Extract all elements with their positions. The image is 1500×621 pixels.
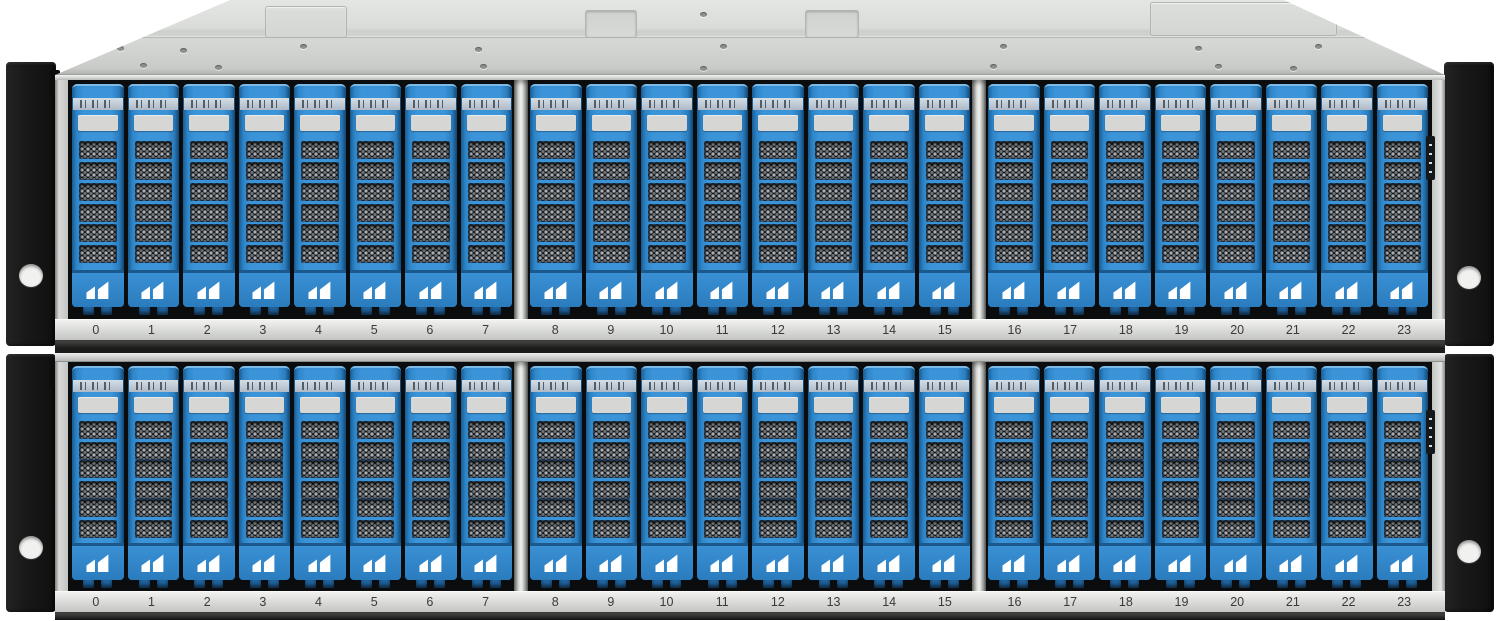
vent-window	[995, 520, 1033, 538]
vent-window	[870, 460, 908, 478]
drive-group	[986, 84, 1430, 319]
vent-window	[1051, 224, 1089, 242]
drive-carrier-body	[1155, 366, 1207, 580]
vent-window	[135, 162, 173, 180]
vent-window	[301, 520, 339, 538]
vent-pair	[190, 421, 228, 460]
drive-feet	[530, 580, 582, 591]
vent-pair	[412, 224, 450, 263]
drive-carrier	[641, 84, 693, 319]
bay-separator	[514, 80, 528, 319]
vent-window	[1273, 460, 1311, 478]
shelf-upper: 01234567891011121314151617181920212223	[55, 0, 1445, 349]
vent-pair	[537, 460, 575, 499]
vent-pair	[1162, 499, 1200, 538]
drive-latch	[988, 270, 1040, 307]
drive-carrier-body	[294, 366, 346, 580]
drive-label-plate	[1383, 397, 1423, 413]
vent-window	[593, 162, 631, 180]
drive-feet	[697, 580, 749, 591]
vent-window	[1217, 183, 1255, 201]
vent-pair	[1051, 460, 1089, 499]
drive-carrier	[350, 366, 402, 591]
slot-number: 9	[583, 592, 639, 612]
dual-sail-logo	[1110, 278, 1140, 302]
barcode-label	[1211, 98, 1261, 110]
drive-carrier-body	[1266, 84, 1318, 307]
vent-window	[468, 204, 506, 222]
drive-foot	[1110, 307, 1121, 315]
slot-number: 4	[291, 592, 347, 612]
drive-vents	[815, 139, 853, 265]
barcode-label	[351, 98, 401, 110]
drive-feet	[919, 307, 971, 319]
drive-carrier	[72, 366, 124, 591]
vent-window	[995, 442, 1033, 460]
drive-foot	[361, 580, 372, 588]
vent-window	[815, 481, 853, 499]
vent-window	[79, 141, 117, 159]
drive-vents	[246, 139, 284, 265]
drive-carrier-body	[72, 366, 124, 580]
drive-feet	[461, 307, 513, 319]
drive-foot	[212, 307, 223, 315]
drive-feet	[239, 307, 291, 319]
dual-sail-logo	[249, 551, 279, 575]
vent-window	[1106, 460, 1144, 478]
vent-pair	[1106, 499, 1144, 538]
vent-window	[870, 520, 908, 538]
drive-carrier	[1155, 84, 1207, 319]
vent-window	[1162, 520, 1200, 538]
vent-window	[1162, 183, 1200, 201]
slot-number-strip: 01234567891011121314151617181920212223	[55, 319, 1445, 343]
drive-label-plate	[1050, 115, 1090, 131]
vent-window	[648, 421, 686, 439]
drive-foot	[837, 580, 848, 588]
drive-carrier-body	[128, 366, 180, 580]
drive-carrier	[919, 366, 971, 591]
vent-window	[870, 499, 908, 517]
vent-window	[79, 520, 117, 538]
bay-release-latch	[1426, 136, 1435, 180]
dual-sail-logo	[416, 551, 446, 575]
vent-pair	[1217, 421, 1255, 460]
drive-carrier	[808, 366, 860, 591]
vent-window	[1217, 204, 1255, 222]
vent-window	[412, 162, 450, 180]
dual-sail-logo	[194, 278, 224, 302]
barcode-label	[864, 98, 914, 110]
drive-feet	[183, 307, 235, 319]
drive-bay	[68, 362, 1432, 591]
vent-window	[704, 520, 742, 538]
drive-vents	[1328, 421, 1366, 538]
drive-feet	[1155, 580, 1207, 591]
vent-window	[1273, 421, 1311, 439]
drive-foot	[305, 580, 316, 588]
vent-pair	[995, 224, 1033, 263]
screw-hole	[1215, 64, 1222, 69]
drive-foot	[1406, 580, 1417, 588]
drive-carrier-body	[863, 84, 915, 307]
drive-label-plate	[1383, 115, 1423, 131]
vent-window	[468, 442, 506, 460]
drive-label-plate	[814, 115, 854, 131]
slot-number: 21	[1265, 320, 1321, 340]
drive-latch	[752, 543, 804, 580]
vent-window	[1162, 141, 1200, 159]
screw-hole	[215, 65, 222, 70]
vent-window	[246, 421, 284, 439]
drive-carrier	[405, 84, 457, 319]
vent-window	[870, 141, 908, 159]
vent-window	[1162, 481, 1200, 499]
drive-vents	[704, 421, 742, 538]
vent-window	[1051, 245, 1089, 263]
vent-window	[537, 481, 575, 499]
vent-pair	[759, 183, 797, 222]
vent-pair	[1273, 183, 1311, 222]
dual-sail-logo	[541, 551, 571, 575]
vent-window	[815, 421, 853, 439]
vent-window	[1106, 141, 1144, 159]
drive-foot	[541, 307, 552, 315]
vent-window	[926, 442, 964, 460]
drive-carrier-body	[808, 84, 860, 307]
drive-group	[70, 84, 514, 319]
drive-label-plate	[994, 115, 1034, 131]
drive-carrier-body	[641, 84, 693, 307]
drive-foot	[1073, 580, 1084, 588]
drive-feet	[697, 307, 749, 319]
vent-window	[1217, 520, 1255, 538]
drive-vents	[357, 139, 395, 265]
drive-carrier	[1044, 84, 1096, 319]
drive-latch	[530, 270, 582, 307]
vent-window	[1384, 481, 1422, 499]
drive-vents	[135, 139, 173, 265]
drive-carrier-body	[405, 84, 457, 307]
drive-feet	[294, 580, 346, 591]
drive-feet	[808, 580, 860, 591]
vent-window	[246, 499, 284, 517]
screw-hole	[720, 44, 727, 49]
vent-window	[1051, 460, 1089, 478]
drive-label-plate	[411, 397, 451, 413]
drive-feet	[1266, 307, 1318, 319]
vent-window	[412, 421, 450, 439]
barcode-label	[989, 98, 1039, 110]
dual-sail-logo	[305, 551, 335, 575]
vent-window	[1328, 224, 1366, 242]
drive-carrier	[697, 366, 749, 591]
vent-window	[1328, 499, 1366, 517]
drive-foot	[157, 580, 168, 588]
drive-carrier	[752, 84, 804, 319]
drive-carrier-body	[1099, 84, 1151, 307]
vent-pair	[357, 499, 395, 538]
drive-vents	[648, 139, 686, 265]
vent-window	[1328, 245, 1366, 263]
vent-pair	[870, 421, 908, 460]
strip-group: 1617181920212223	[987, 320, 1432, 340]
drive-carrier-body	[1377, 84, 1429, 307]
vent-window	[704, 421, 742, 439]
vent-window	[537, 245, 575, 263]
vent-pair	[1328, 421, 1366, 460]
drive-carrier-body	[72, 84, 124, 307]
drive-foot	[194, 580, 205, 588]
drive-feet	[405, 580, 457, 591]
drive-label-plate	[411, 115, 451, 131]
vent-pair	[926, 183, 964, 222]
vent-window	[1217, 141, 1255, 159]
bay-release-latch	[1426, 410, 1435, 454]
drive-carrier-body	[461, 84, 513, 307]
slot-number: 6	[402, 320, 458, 340]
vent-window	[995, 421, 1033, 439]
vent-pair	[648, 499, 686, 538]
drive-label-plate	[925, 115, 965, 131]
vent-window	[357, 141, 395, 159]
screw-hole	[700, 66, 707, 71]
slot-number: 21	[1265, 592, 1321, 612]
drive-foot	[670, 307, 681, 315]
barcode-label	[240, 98, 290, 110]
drive-vents	[648, 421, 686, 538]
screw-hole	[300, 44, 307, 49]
vent-window	[190, 481, 228, 499]
vent-window	[926, 460, 964, 478]
vent-pair	[759, 224, 797, 263]
drive-foot	[597, 307, 608, 315]
drive-foot	[726, 307, 737, 315]
drive-feet	[350, 580, 402, 591]
vent-pair	[870, 183, 908, 222]
vent-window	[412, 520, 450, 538]
drive-carrier	[1210, 84, 1262, 319]
vent-window	[1106, 520, 1144, 538]
vent-window	[1384, 442, 1422, 460]
vent-pair	[759, 460, 797, 499]
vent-pair	[1384, 141, 1422, 180]
drive-foot	[559, 307, 570, 315]
vent-window	[1273, 245, 1311, 263]
drive-carrier-body	[586, 366, 638, 580]
drive-feet	[350, 307, 402, 319]
vent-window	[704, 224, 742, 242]
drive-carrier-body	[350, 366, 402, 580]
drive-feet	[239, 580, 291, 591]
drive-carrier	[1266, 366, 1318, 591]
dual-sail-logo	[83, 278, 113, 302]
dual-sail-logo	[471, 551, 501, 575]
vent-window	[190, 245, 228, 263]
drive-vents	[704, 139, 742, 265]
drive-carrier-body	[1377, 366, 1429, 580]
chassis-top-panel	[55, 0, 1445, 75]
slot-number: 7	[458, 592, 514, 612]
vent-window	[301, 183, 339, 201]
drive-latch	[586, 543, 638, 580]
vent-window	[1162, 245, 1200, 263]
drive-feet	[752, 307, 804, 319]
barcode-label	[1045, 98, 1095, 110]
drive-latch	[1377, 543, 1429, 580]
vent-window	[468, 224, 506, 242]
drive-latch	[530, 543, 582, 580]
vent-pair	[995, 141, 1033, 180]
vent-window	[357, 224, 395, 242]
drive-latch	[405, 543, 457, 580]
vent-window	[870, 204, 908, 222]
vent-pair	[135, 460, 173, 499]
screw-hole	[180, 48, 187, 53]
barcode-label	[1267, 98, 1317, 110]
vent-window	[593, 204, 631, 222]
drive-carrier	[239, 84, 291, 319]
vent-pair	[926, 224, 964, 263]
barcode-label	[406, 98, 456, 110]
strip-group: 89101112131415	[527, 592, 972, 612]
drive-label-plate	[356, 397, 396, 413]
slot-number: 20	[1209, 320, 1265, 340]
drive-foot	[490, 307, 501, 315]
drive-vents	[593, 139, 631, 265]
vent-window	[870, 481, 908, 499]
vent-pair	[246, 499, 284, 538]
vent-window	[79, 204, 117, 222]
vent-pair	[1273, 141, 1311, 180]
drive-carrier-body	[919, 84, 971, 307]
drive-carrier-body	[1155, 84, 1207, 307]
barcode-label	[1322, 380, 1372, 392]
drive-label-plate	[1327, 397, 1367, 413]
vent-window	[1106, 442, 1144, 460]
vent-pair	[1217, 183, 1255, 222]
drive-foot	[781, 580, 792, 588]
drive-vents	[1051, 421, 1089, 538]
drive-vents	[759, 139, 797, 265]
dual-sail-logo	[138, 278, 168, 302]
drive-carrier	[183, 84, 235, 319]
drive-carrier	[1155, 366, 1207, 591]
drive-carrier-body	[988, 84, 1040, 307]
vent-pair	[301, 421, 339, 460]
drive-latch	[1044, 270, 1096, 307]
drive-feet	[641, 580, 693, 591]
vent-pair	[135, 183, 173, 222]
drive-latch	[863, 270, 915, 307]
slot-number: 5	[346, 320, 402, 340]
slot-number: 0	[68, 592, 124, 612]
vent-window	[759, 224, 797, 242]
vent-window	[1384, 183, 1422, 201]
dual-sail-logo	[929, 278, 959, 302]
drive-foot	[1388, 307, 1399, 315]
drive-foot	[1166, 580, 1177, 588]
vent-pair	[246, 141, 284, 180]
vent-window	[301, 141, 339, 159]
drive-label-plate	[536, 397, 576, 413]
drive-bay-frame	[55, 80, 1445, 319]
vent-window	[412, 204, 450, 222]
vent-window	[468, 481, 506, 499]
slot-number: 4	[291, 320, 347, 340]
slot-number: 18	[1098, 592, 1154, 612]
vent-window	[648, 442, 686, 460]
slot-number: 17	[1042, 320, 1098, 340]
slot-number: 16	[987, 320, 1043, 340]
vent-window	[246, 245, 284, 263]
vent-window	[870, 183, 908, 201]
drive-vents	[1162, 421, 1200, 538]
vent-pair	[1328, 460, 1366, 499]
drive-carrier	[863, 84, 915, 319]
vent-window	[759, 245, 797, 263]
strip-group: 1617181920212223	[987, 592, 1432, 612]
drive-vents	[301, 139, 339, 265]
vent-window	[870, 162, 908, 180]
vent-pair	[412, 141, 450, 180]
drive-carrier-body	[350, 84, 402, 307]
vent-window	[648, 245, 686, 263]
vent-window	[1162, 499, 1200, 517]
drive-carrier	[1266, 84, 1318, 319]
drive-foot	[1221, 307, 1232, 315]
vent-window	[1051, 162, 1089, 180]
vent-window	[301, 162, 339, 180]
vent-window	[301, 245, 339, 263]
strip-group: 89101112131415	[527, 320, 972, 340]
barcode-label	[587, 98, 637, 110]
vent-pair	[537, 224, 575, 263]
dual-sail-logo	[416, 278, 446, 302]
drive-feet	[752, 580, 804, 591]
drive-foot	[139, 580, 150, 588]
vent-window	[1162, 204, 1200, 222]
drive-feet	[294, 307, 346, 319]
vent-pair	[468, 421, 506, 460]
vent-window	[1384, 224, 1422, 242]
barcode-label	[184, 98, 234, 110]
vent-window	[468, 421, 506, 439]
vent-pair	[1217, 141, 1255, 180]
strip-separator	[513, 320, 527, 340]
drive-foot	[268, 580, 279, 588]
drive-foot	[1388, 580, 1399, 588]
vent-window	[593, 499, 631, 517]
drive-foot	[874, 307, 885, 315]
slot-number: 2	[179, 320, 235, 340]
drive-latch	[461, 543, 513, 580]
slot-number: 22	[1321, 320, 1377, 340]
vent-window	[995, 245, 1033, 263]
vent-window	[926, 224, 964, 242]
dual-sail-logo	[1165, 278, 1195, 302]
screw-hole	[1195, 46, 1202, 51]
vent-pair	[648, 460, 686, 499]
drive-foot	[819, 580, 830, 588]
vent-pair	[412, 460, 450, 499]
vent-window	[79, 481, 117, 499]
vent-window	[190, 141, 228, 159]
drive-foot	[361, 307, 372, 315]
drive-label-plate	[1216, 115, 1256, 131]
slot-number: 19	[1154, 592, 1210, 612]
drive-foot	[1350, 580, 1361, 588]
